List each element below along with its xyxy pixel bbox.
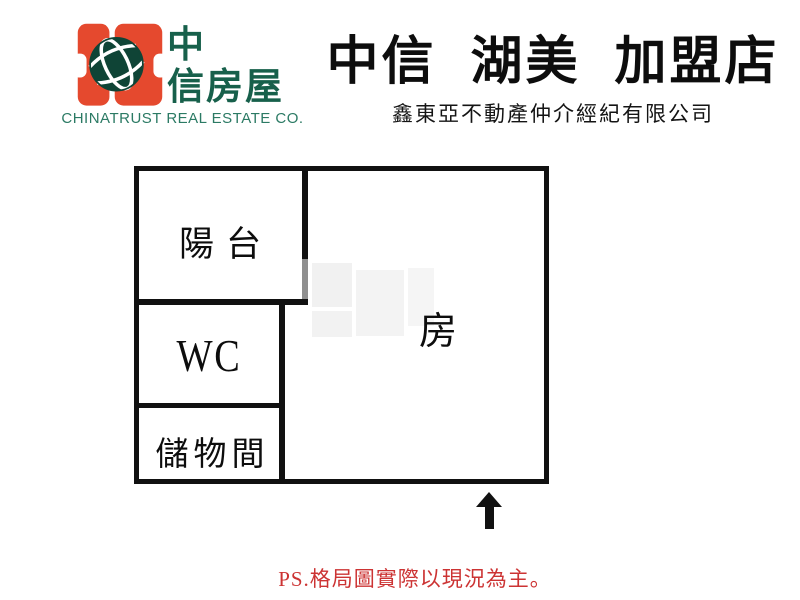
company-name-en: CHINATRUST REAL ESTATE CO. [60,110,305,127]
room-label-main-room: 房 [406,300,470,355]
store-subtitle: 鑫東亞不動產仲介經紀有限公司 [318,98,788,128]
watermark-smudge [312,311,352,337]
watermark-smudge [312,263,352,307]
arrow-shaft [485,507,494,529]
brand-name-line1: 中 [167,24,307,66]
brand-name-cjk: 中 信房屋 [167,24,307,108]
entrance-arrow-icon [476,492,502,529]
wall-balcony-room-divider [302,166,308,260]
store-title: 中信 湖美 加盟店 [318,30,788,96]
ps-note: PS.格局圖實際以現況為主。 [15,563,800,593]
wall-wc-storage-divider [134,403,285,408]
door-opening [302,259,308,304]
brand-name-line2: 信房屋 [167,66,307,108]
room-label-balcony: 陽台 [139,216,301,267]
page: 中 信房屋 CHINATRUST REAL ESTATE CO. 中信 湖美 加… [0,0,800,600]
arrow-head [476,492,502,507]
chinatrust-logo-icon [76,22,164,110]
room-label-wc: WC [150,330,269,382]
room-label-storage: 儲物間 [136,427,284,475]
watermark-smudge [356,270,404,336]
